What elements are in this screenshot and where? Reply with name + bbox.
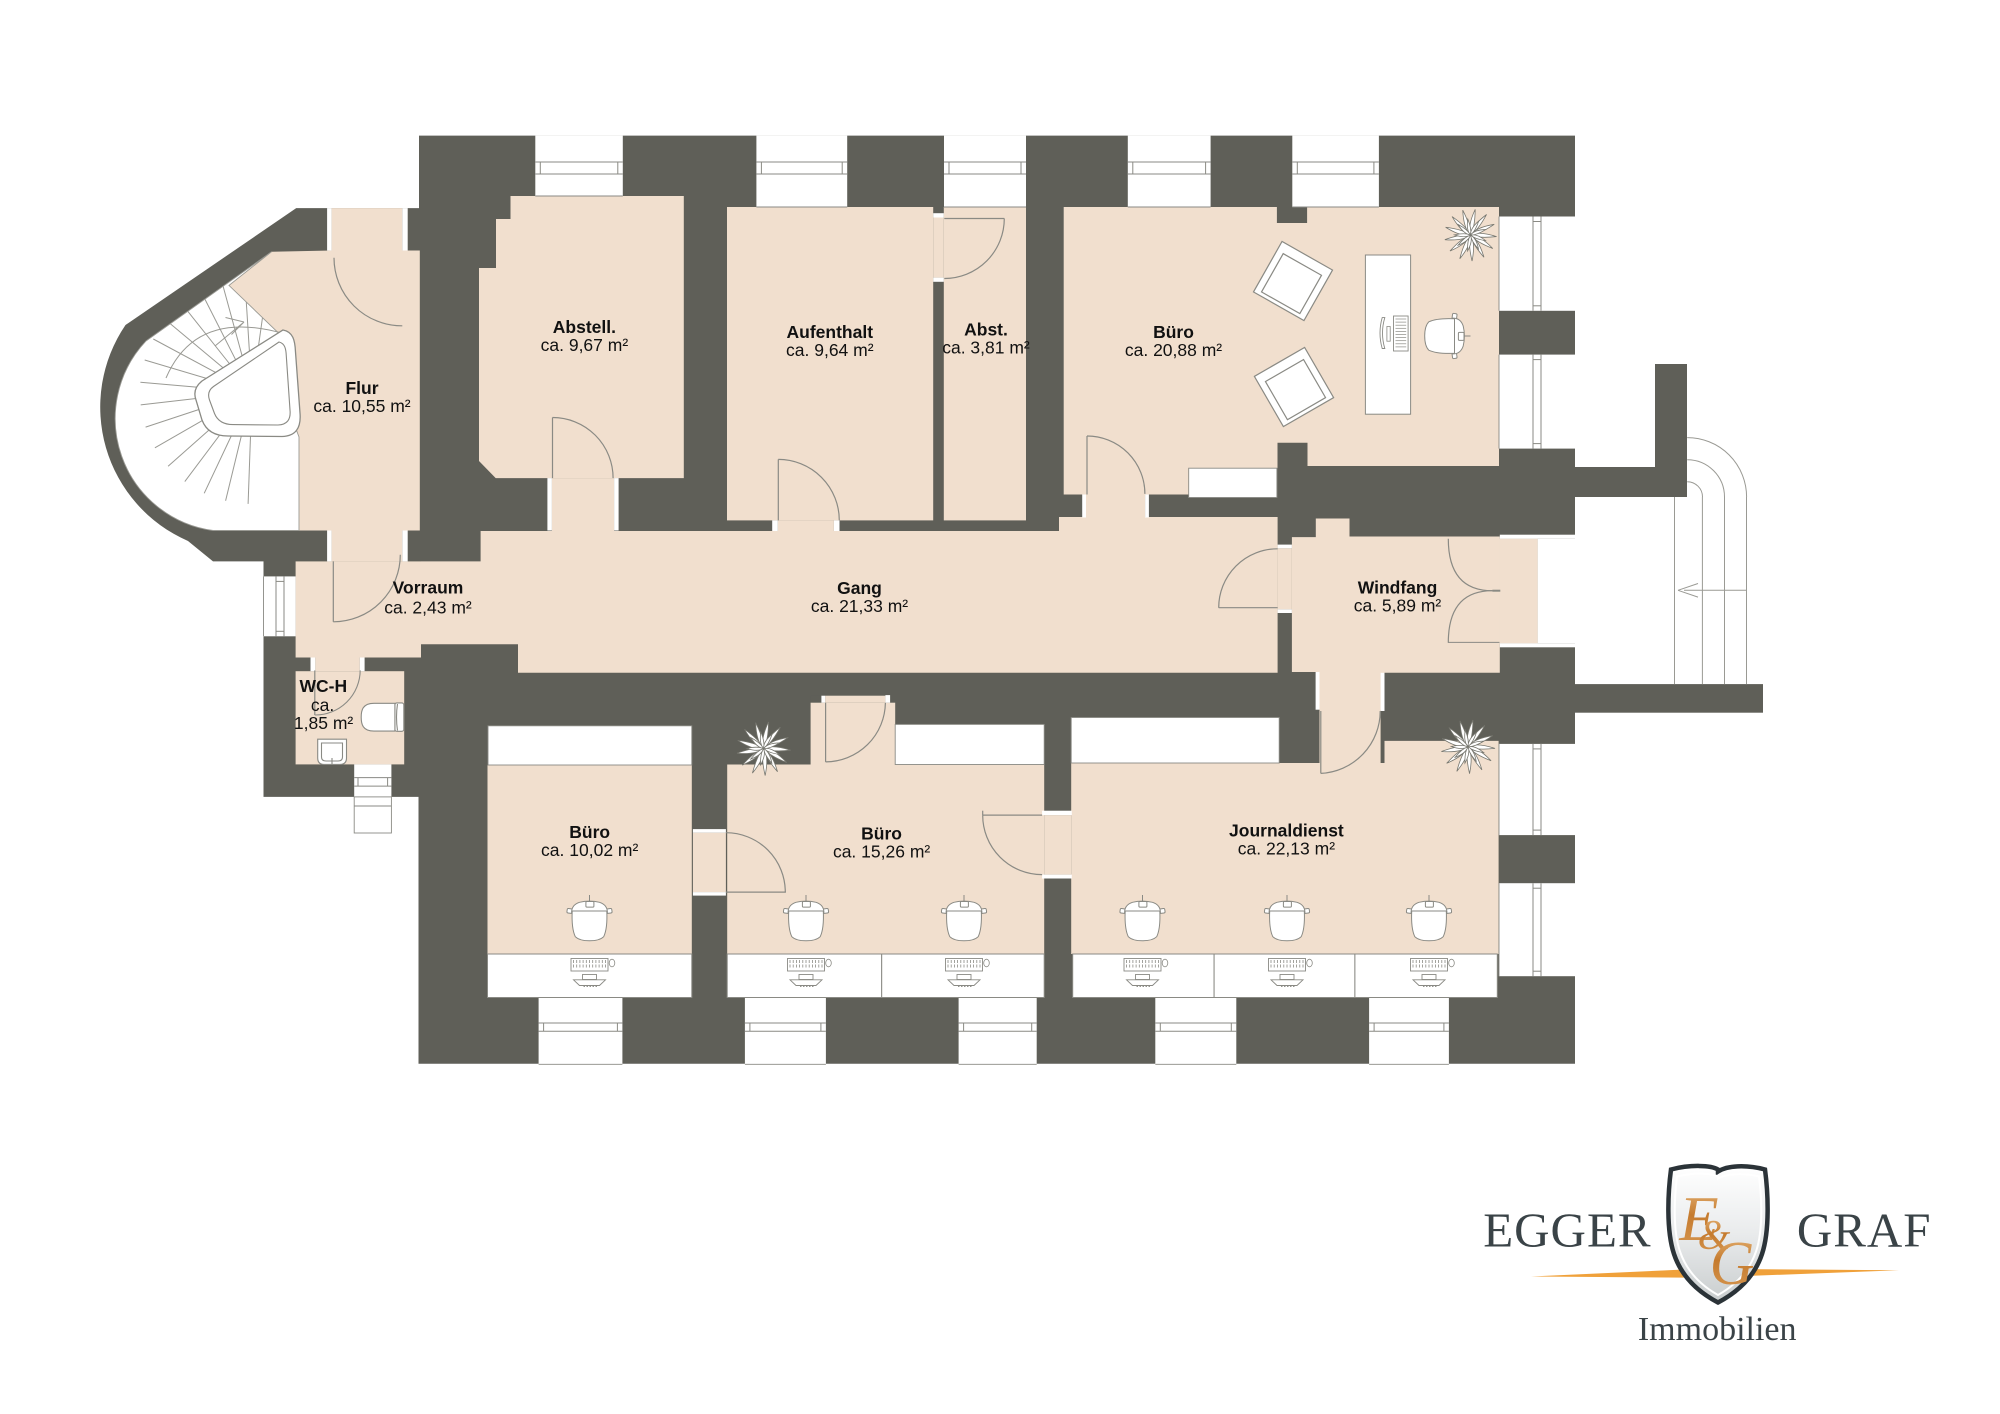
svg-text:ca. 9,67 m²: ca. 9,67 m² xyxy=(541,335,629,355)
svg-text:Immobilien: Immobilien xyxy=(1638,1311,1797,1348)
svg-text:ca.: ca. xyxy=(311,695,334,715)
svg-text:1,85 m²: 1,85 m² xyxy=(294,713,353,733)
svg-text:Journaldienst: Journaldienst xyxy=(1229,821,1344,841)
svg-text:Büro: Büro xyxy=(861,824,902,844)
svg-text:Flur: Flur xyxy=(345,378,378,398)
svg-text:ca. 5,89 m²: ca. 5,89 m² xyxy=(1354,596,1442,616)
svg-text:WC-H: WC-H xyxy=(299,676,347,696)
svg-text:Abstell.: Abstell. xyxy=(553,317,616,337)
svg-text:Aufenthalt: Aufenthalt xyxy=(787,322,874,342)
svg-text:Büro: Büro xyxy=(569,822,610,842)
svg-text:Gang: Gang xyxy=(837,578,882,598)
svg-text:ca. 3,81 m²: ca. 3,81 m² xyxy=(942,338,1030,358)
svg-text:ca. 10,55 m²: ca. 10,55 m² xyxy=(313,396,410,416)
svg-text:Windfang: Windfang xyxy=(1358,578,1438,598)
svg-text:GRAF: GRAF xyxy=(1797,1203,1932,1258)
svg-text:ca. 15,26 m²: ca. 15,26 m² xyxy=(833,842,930,862)
svg-text:ca. 21,33 m²: ca. 21,33 m² xyxy=(811,596,908,616)
svg-text:Vorraum: Vorraum xyxy=(393,577,464,597)
svg-text:Abst.: Abst. xyxy=(964,320,1008,340)
svg-text:ca. 20,88 m²: ca. 20,88 m² xyxy=(1125,340,1222,360)
svg-text:EGGER: EGGER xyxy=(1483,1203,1651,1258)
svg-text:ca. 9,64 m²: ca. 9,64 m² xyxy=(786,340,874,360)
svg-text:G: G xyxy=(1710,1230,1755,1298)
svg-text:ca. 22,13 m²: ca. 22,13 m² xyxy=(1238,839,1335,859)
svg-text:ca. 2,43 m²: ca. 2,43 m² xyxy=(384,597,472,617)
svg-text:ca. 10,02 m²: ca. 10,02 m² xyxy=(541,840,638,860)
svg-text:Büro: Büro xyxy=(1153,322,1194,342)
